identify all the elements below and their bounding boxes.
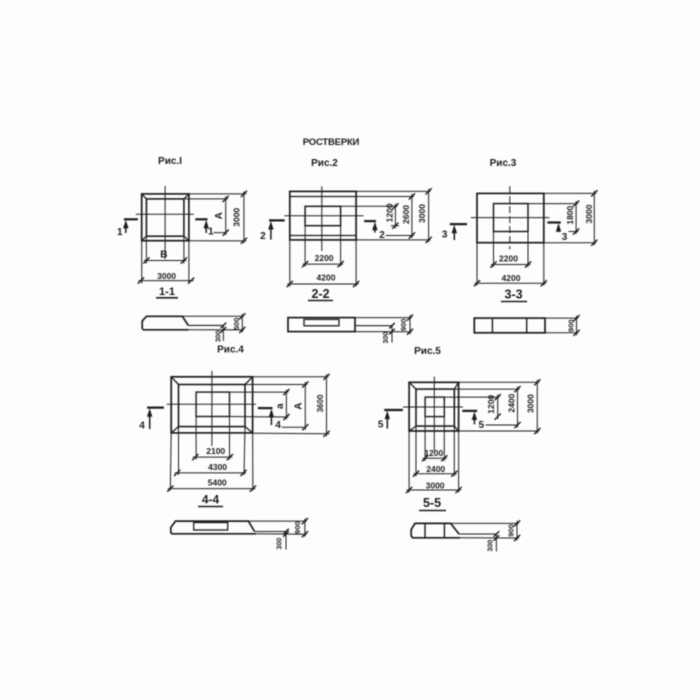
- svg-text:2200: 2200: [315, 253, 334, 263]
- svg-text:300: 300: [383, 332, 390, 344]
- svg-text:2400: 2400: [507, 393, 517, 412]
- svg-text:3000: 3000: [584, 204, 594, 223]
- svg-text:В: В: [160, 250, 167, 261]
- svg-text:3: 3: [562, 232, 568, 243]
- svg-text:Рис.3: Рис.3: [490, 158, 517, 169]
- svg-text:2: 2: [260, 231, 266, 242]
- svg-text:3000: 3000: [232, 208, 242, 227]
- svg-text:А: А: [293, 403, 304, 410]
- svg-text:3600: 3600: [316, 394, 325, 412]
- svg-text:3000: 3000: [157, 271, 176, 281]
- svg-text:900: 900: [507, 524, 516, 537]
- svg-text:2600: 2600: [401, 205, 411, 224]
- svg-text:4200: 4200: [502, 273, 521, 283]
- svg-text:4: 4: [139, 421, 145, 432]
- svg-text:900: 900: [399, 319, 408, 332]
- svg-text:4: 4: [275, 420, 281, 431]
- svg-text:2200: 2200: [499, 253, 518, 263]
- svg-text:2-2: 2-2: [311, 287, 329, 301]
- svg-text:1200: 1200: [385, 203, 395, 222]
- svg-text:5: 5: [378, 420, 384, 431]
- svg-text:1: 1: [208, 227, 214, 238]
- svg-text:4200: 4200: [317, 273, 336, 283]
- svg-text:3000: 3000: [426, 480, 445, 490]
- svg-text:4-4: 4-4: [202, 493, 220, 507]
- svg-text:1200: 1200: [424, 448, 443, 458]
- svg-text:1200: 1200: [486, 395, 496, 414]
- svg-text:300: 300: [216, 330, 223, 342]
- svg-text:2100: 2100: [206, 446, 225, 456]
- svg-text:3: 3: [442, 229, 448, 240]
- svg-text:900: 900: [566, 319, 575, 332]
- svg-text:Рис.I: Рис.I: [158, 156, 182, 167]
- svg-text:3000: 3000: [417, 204, 427, 223]
- svg-text:5400: 5400: [208, 478, 227, 488]
- svg-text:2: 2: [379, 230, 385, 241]
- svg-text:300: 300: [488, 540, 495, 552]
- svg-text:РОСТВЕРКИ: РОСТВЕРКИ: [303, 137, 360, 148]
- svg-text:Рис.2: Рис.2: [311, 158, 338, 169]
- svg-text:а: а: [275, 403, 286, 409]
- svg-text:4300: 4300: [208, 462, 227, 472]
- svg-text:1-1: 1-1: [159, 286, 175, 298]
- svg-text:Рис.4: Рис.4: [217, 345, 244, 356]
- svg-text:5: 5: [479, 420, 485, 431]
- svg-text:5-5: 5-5: [423, 496, 441, 510]
- svg-text:А: А: [214, 212, 225, 219]
- svg-text:1800: 1800: [565, 205, 575, 224]
- svg-text:3000: 3000: [526, 394, 536, 413]
- svg-text:1: 1: [117, 227, 123, 238]
- svg-text:3-3: 3-3: [504, 287, 522, 301]
- svg-text:300: 300: [277, 538, 284, 550]
- svg-text:900: 900: [293, 521, 302, 534]
- svg-text:2400: 2400: [426, 464, 445, 474]
- svg-text:500: 500: [232, 318, 241, 331]
- svg-text:Рис.5: Рис.5: [414, 346, 441, 357]
